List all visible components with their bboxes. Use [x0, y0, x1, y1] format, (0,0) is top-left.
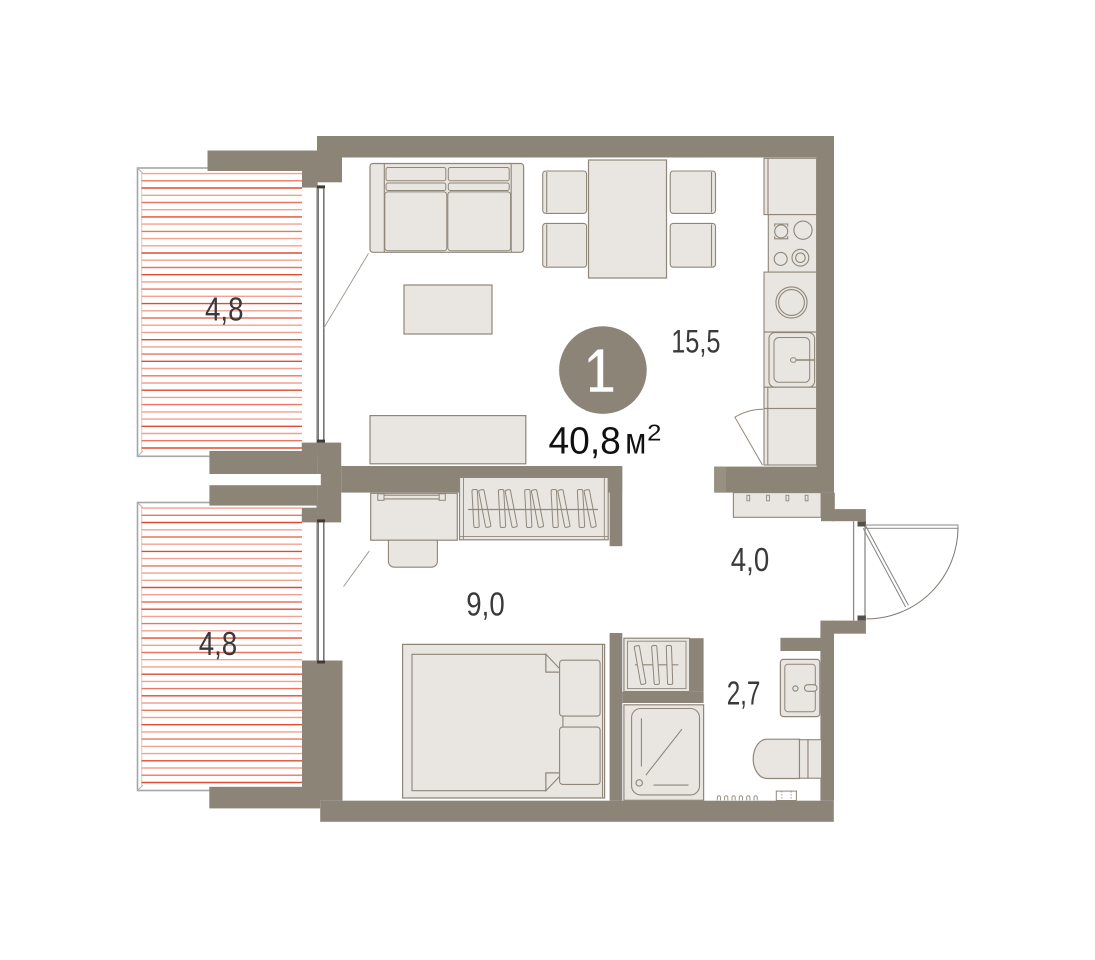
svg-text:2,7: 2,7: [727, 674, 761, 711]
svg-text:4,0: 4,0: [731, 541, 769, 578]
svg-text:40,8: 40,8: [549, 420, 621, 462]
svg-text:2: 2: [647, 419, 661, 445]
svg-text:4,8: 4,8: [199, 625, 238, 662]
svg-text:9,0: 9,0: [466, 586, 504, 623]
svg-text:4,8: 4,8: [205, 291, 244, 328]
svg-text:15,5: 15,5: [671, 324, 720, 360]
svg-text:м: м: [625, 420, 646, 461]
